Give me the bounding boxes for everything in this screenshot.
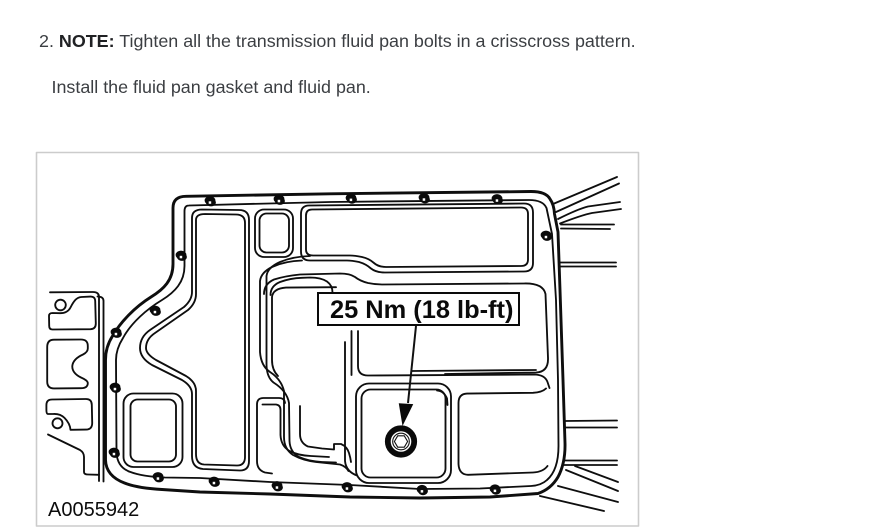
svg-text:25 Nm (18 lb-ft): 25 Nm (18 lb-ft) — [330, 296, 513, 324]
svg-text:A0055942: A0055942 — [48, 499, 139, 521]
